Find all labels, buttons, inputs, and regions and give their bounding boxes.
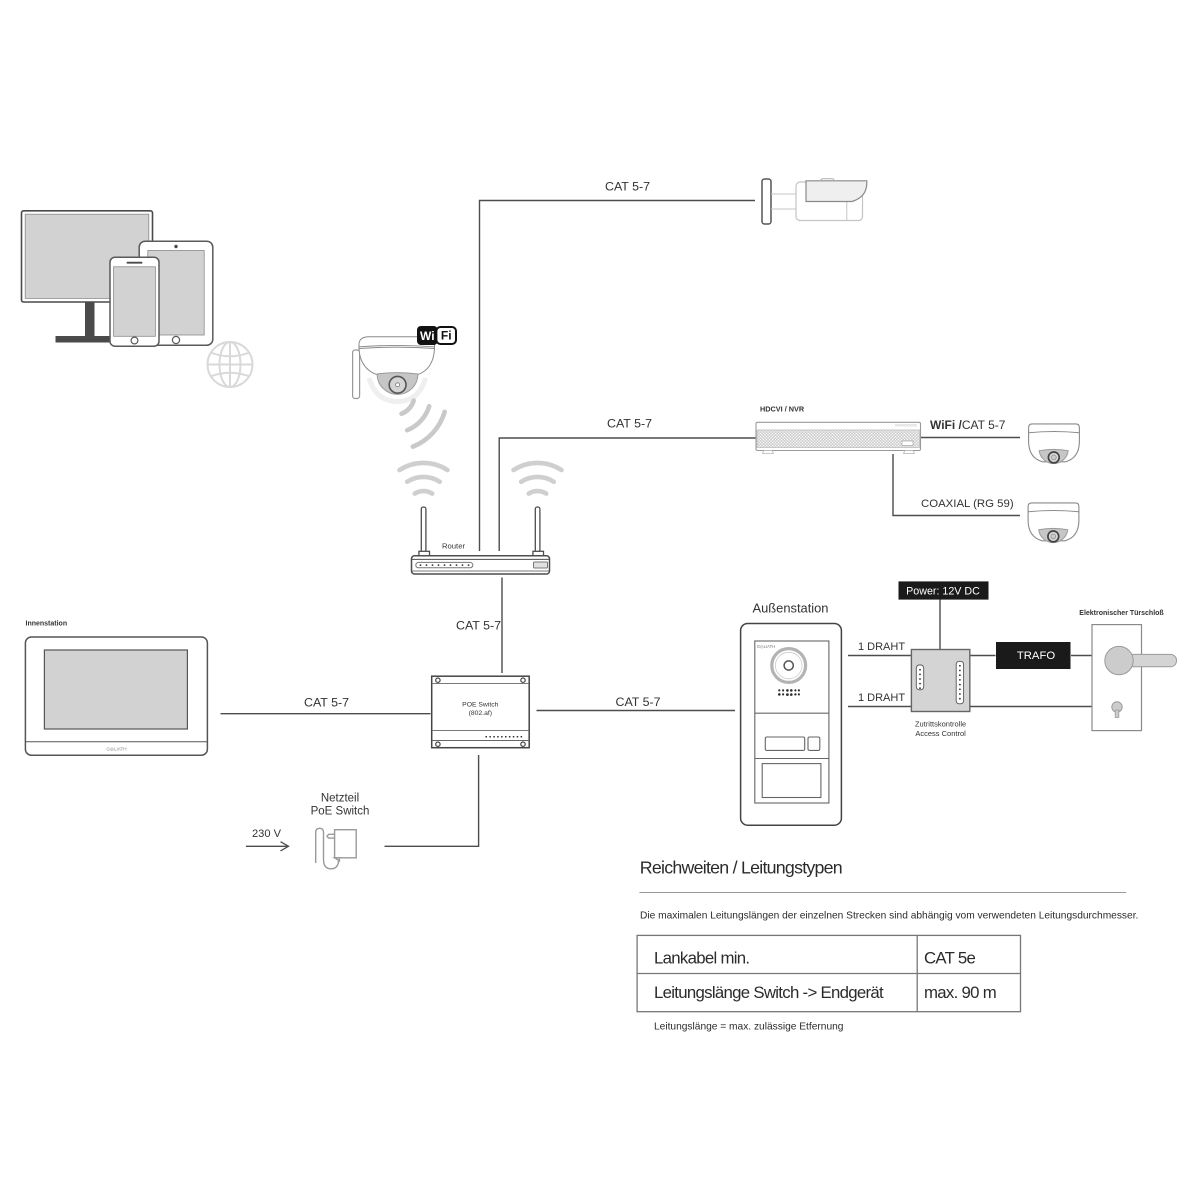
svg-text:Leitungslänge = max. zulässige: Leitungslänge = max. zulässige Etfernung	[654, 1021, 844, 1032]
svg-text:Außenstation: Außenstation	[753, 601, 829, 616]
svg-text:CAT 5-7: CAT 5-7	[304, 696, 349, 710]
svg-text:CAT 5-7: CAT 5-7	[456, 619, 501, 633]
svg-text:Zutrittskontrolle: Zutrittskontrolle	[915, 720, 966, 729]
svg-text:TRAFO: TRAFO	[1017, 650, 1055, 662]
svg-text:CAT 5-7: CAT 5-7	[607, 417, 652, 431]
svg-text:CAT 5-7: CAT 5-7	[605, 180, 650, 194]
svg-text:Wi: Wi	[420, 329, 435, 343]
svg-text:Lankabel min.: Lankabel min.	[654, 949, 749, 968]
svg-text:POE Switch: POE Switch	[462, 702, 498, 709]
svg-text:(802.af): (802.af)	[469, 710, 492, 717]
svg-text:1 DRAHT: 1 DRAHT	[858, 641, 905, 653]
svg-text:Innenstation: Innenstation	[26, 620, 68, 627]
svg-text:WiFi /CAT 5-7: WiFi /CAT 5-7	[930, 418, 1006, 432]
svg-text:G◎LIATH: G◎LIATH	[106, 747, 126, 752]
svg-text:Power: 12V DC: Power: 12V DC	[906, 586, 980, 598]
svg-text:1 DRAHT: 1 DRAHT	[858, 692, 905, 704]
svg-text:max. 90 m: max. 90 m	[924, 983, 996, 1002]
svg-text:CAT 5-7: CAT 5-7	[616, 695, 661, 709]
svg-text:HDCVI / NVR: HDCVI / NVR	[760, 405, 805, 414]
svg-text:Leitungslänge Switch -> Endger: Leitungslänge Switch -> Endgerät	[654, 983, 884, 1002]
svg-text:COAXIAL (RG 59): COAXIAL (RG 59)	[921, 498, 1014, 510]
svg-text:Access Control: Access Control	[915, 729, 966, 738]
svg-text:Fi: Fi	[441, 329, 452, 343]
svg-text:Reichweiten / Leitungstypen: Reichweiten / Leitungstypen	[640, 858, 842, 878]
svg-text:G◎LIATH: G◎LIATH	[757, 644, 775, 649]
svg-text:PoE Switch: PoE Switch	[311, 806, 370, 818]
svg-text:Router: Router	[442, 541, 466, 550]
svg-text:Netzteil: Netzteil	[321, 793, 359, 805]
svg-text:CAT 5e: CAT 5e	[924, 949, 976, 968]
svg-text:230 V: 230 V	[252, 828, 282, 840]
svg-text:Die maximalen Leitungslängen d: Die maximalen Leitungslängen der einzeln…	[640, 911, 1138, 922]
svg-text:Elektronischer Türschloß: Elektronischer Türschloß	[1079, 610, 1164, 617]
